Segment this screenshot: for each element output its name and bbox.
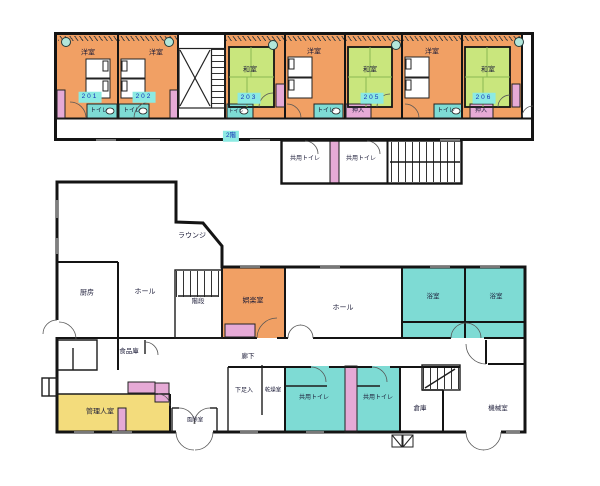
f1-shared-toilet-1-label: 共用トイレ	[299, 395, 329, 401]
rec-room-label: 娯楽室	[243, 298, 264, 305]
room-206-type: 和室	[481, 67, 495, 74]
machine-room-label: 機械室	[488, 406, 508, 413]
oshiire-205-label: 押入	[352, 108, 364, 114]
room-203-number: 203	[238, 93, 261, 104]
wall-openings	[57, 320, 501, 432]
toilet-206w-label: トイレ	[437, 108, 455, 114]
toilet-203-label: トイレ	[228, 110, 243, 115]
f1-shared-toilet-2-label: 共用トイレ	[363, 395, 393, 401]
room-201-type: 洋室	[81, 50, 95, 57]
toilet-202-label: トイレ	[123, 108, 141, 114]
room-202-number: 202	[133, 92, 156, 103]
shoe-storage-label: 下足入	[235, 388, 253, 394]
storage-label: 倉庫	[414, 406, 427, 413]
vent-fan-icons	[62, 38, 524, 50]
room-201-number: 201	[79, 92, 102, 103]
room-205-number: 205	[361, 93, 384, 104]
room-202-type: 洋室	[149, 50, 163, 57]
windbreak-label: 風除室	[187, 418, 204, 424]
f2-stairwell	[179, 49, 225, 109]
oshiire-206-label: 押入	[475, 108, 487, 114]
room-204-type: 洋室	[307, 49, 321, 56]
f2-toilet-bowl-icons	[106, 108, 460, 114]
kitchen-label: 厨房	[80, 290, 94, 297]
manager-room-label: 管理人室	[86, 409, 114, 416]
toilet-201-label: トイレ	[90, 108, 108, 114]
drying-room-label: 乾燥室	[265, 388, 282, 394]
pantry-label: 食品庫	[119, 349, 139, 356]
f2-shared-toilet-1-label: 共用トイレ	[290, 156, 320, 162]
floor-plan-canvas: 洋室 洋室 和室 洋室 和室 洋室 和室 201 202 203 205 206…	[0, 0, 600, 486]
stairs-label: 階段	[192, 299, 205, 306]
toilet-204-label: トイレ	[317, 108, 335, 114]
f2-shared-toilet-2-label: 共用トイレ	[346, 156, 376, 162]
hall-left-label: ホール	[135, 289, 156, 296]
floor2-badge: 2階	[223, 131, 239, 142]
lounge-label: ラウンジ	[178, 233, 206, 240]
corridor-label: 廊下	[242, 354, 255, 361]
room-203-type: 和室	[243, 67, 257, 74]
room-205-type: 和室	[363, 67, 377, 74]
f2-lower-block	[282, 140, 462, 184]
room-206w-type: 洋室	[425, 49, 439, 56]
bath-2-label: 浴室	[490, 294, 503, 301]
room-206-number: 206	[473, 93, 496, 104]
hall-label: ホール	[333, 305, 354, 312]
bath-1-label: 浴室	[427, 294, 440, 301]
